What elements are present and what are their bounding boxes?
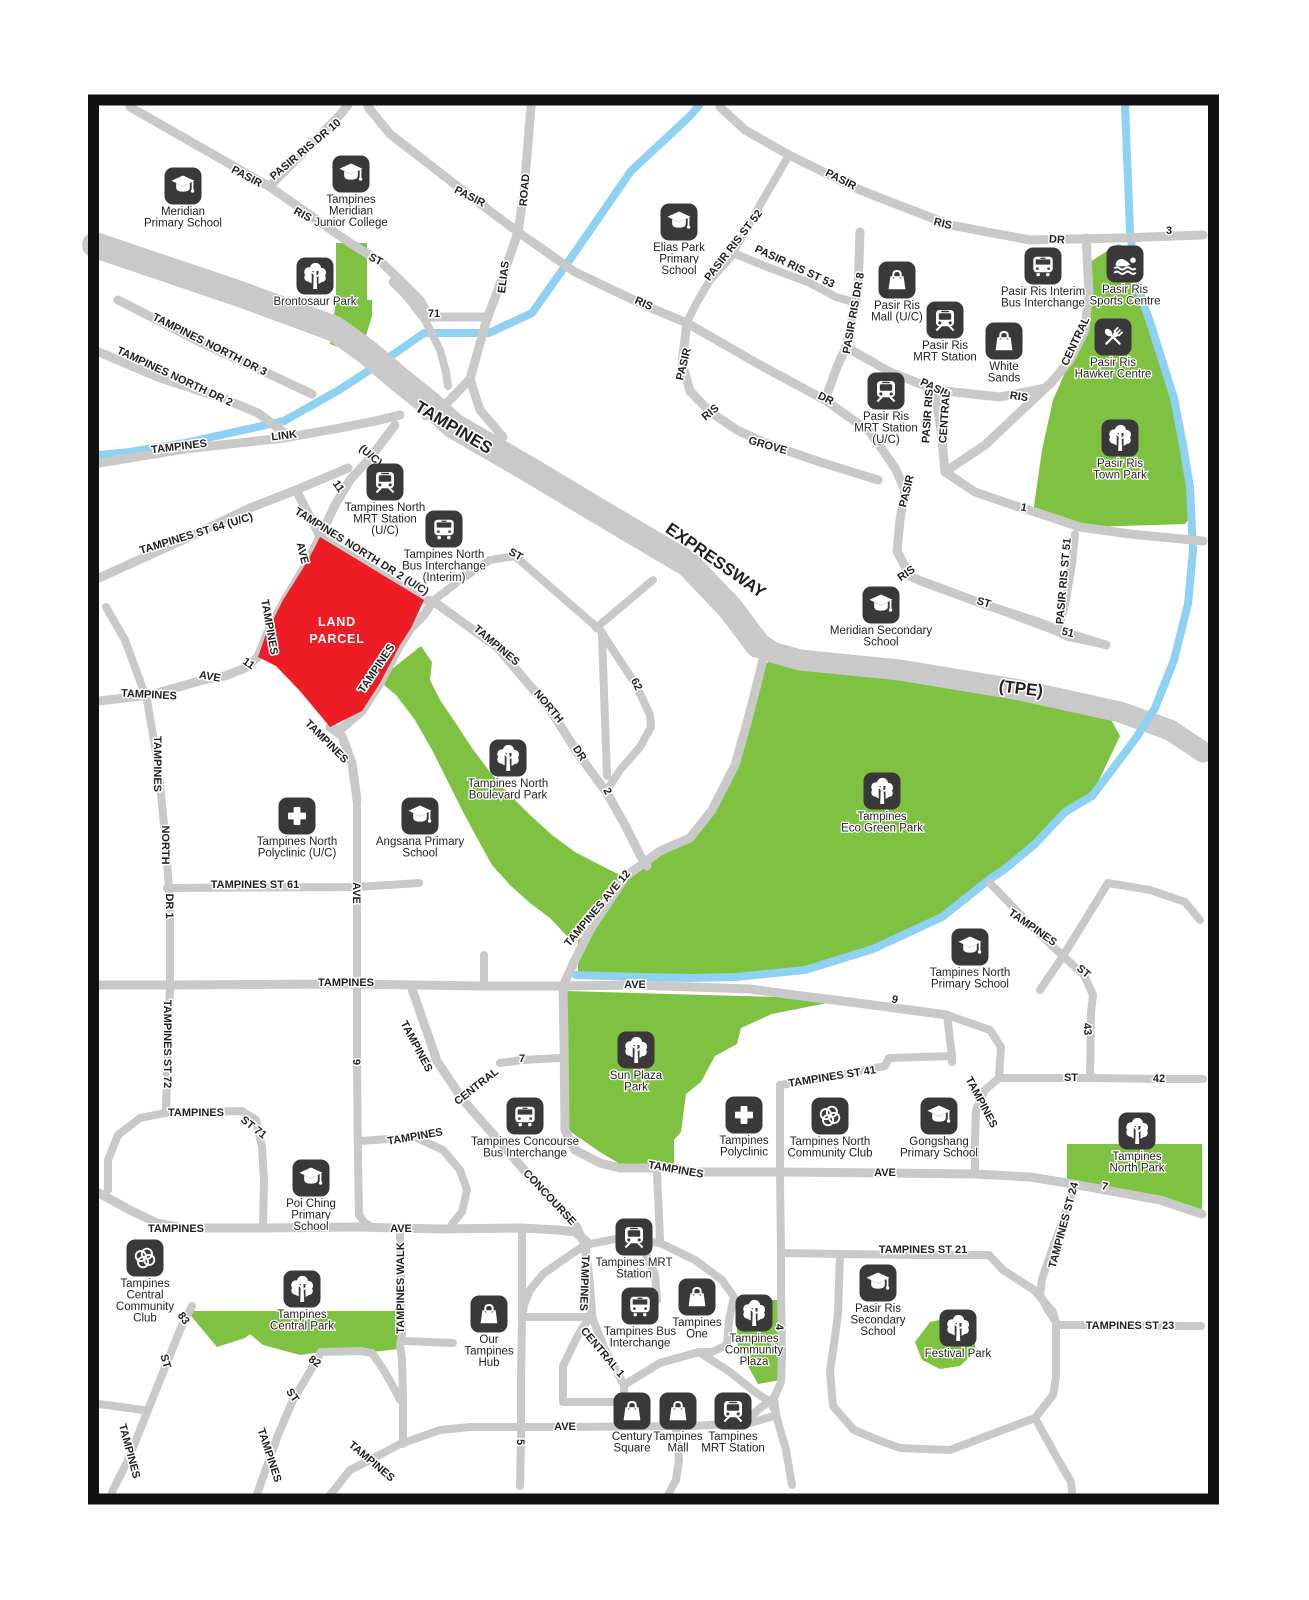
svg-text:(U/C): (U/C): [872, 434, 900, 446]
svg-text:Tampines: Tampines: [708, 1431, 757, 1443]
svg-text:Pasir Ris: Pasir Ris: [1097, 458, 1143, 470]
svg-text:Bus Interchange: Bus Interchange: [483, 1148, 567, 1160]
svg-text:Pasir Ris: Pasir Ris: [874, 300, 920, 312]
svg-text:4: 4: [773, 1324, 785, 1331]
svg-text:Our: Our: [479, 1334, 498, 1346]
svg-text:Century: Century: [612, 1431, 653, 1443]
svg-text:RIS: RIS: [1009, 390, 1029, 404]
svg-text:TAMPINES: TAMPINES: [168, 1107, 224, 1119]
svg-text:Poi Ching: Poi Ching: [286, 1198, 336, 1210]
svg-text:Tampines Concourse: Tampines Concourse: [471, 1136, 579, 1148]
svg-text:Tampines: Tampines: [326, 194, 375, 206]
svg-text:Mall: Mall: [667, 1443, 688, 1455]
svg-text:7: 7: [519, 1053, 525, 1065]
svg-text:Sun Plaza: Sun Plaza: [610, 1070, 663, 1082]
svg-text:Plaza: Plaza: [740, 1356, 769, 1368]
svg-text:TAMPINES: TAMPINES: [148, 1223, 204, 1235]
svg-text:Tampines: Tampines: [120, 1278, 169, 1290]
svg-text:Pasir Ris: Pasir Ris: [863, 411, 909, 423]
svg-text:Central: Central: [126, 1290, 163, 1302]
svg-text:DR 1: DR 1: [163, 893, 175, 918]
svg-text:Tampines: Tampines: [653, 1431, 702, 1443]
svg-text:Hub: Hub: [478, 1357, 499, 1369]
svg-text:School: School: [402, 848, 437, 860]
svg-text:Brontosaur Park: Brontosaur Park: [273, 296, 356, 308]
svg-text:School: School: [661, 265, 696, 277]
svg-text:White: White: [989, 361, 1018, 373]
svg-text:PARCEL: PARCEL: [309, 632, 364, 646]
svg-text:Station: Station: [616, 1269, 652, 1281]
svg-text:MRT Station: MRT Station: [701, 1443, 765, 1455]
svg-text:Square: Square: [613, 1443, 650, 1455]
svg-text:DR: DR: [1049, 233, 1066, 246]
svg-text:Angsana Primary: Angsana Primary: [376, 836, 464, 848]
svg-text:Pasir Ris: Pasir Ris: [922, 340, 968, 352]
svg-text:Eco Green Park: Eco Green Park: [841, 823, 923, 835]
svg-text:AVE: AVE: [390, 1223, 412, 1235]
svg-text:AVE: AVE: [874, 1167, 896, 1179]
svg-text:NORTH: NORTH: [159, 825, 171, 864]
svg-text:Elias Park: Elias Park: [653, 242, 705, 254]
svg-text:Primary: Primary: [291, 1210, 331, 1222]
svg-text:Tampines North: Tampines North: [404, 549, 485, 561]
svg-text:Secondary: Secondary: [851, 1315, 906, 1327]
svg-text:Tampines: Tampines: [857, 811, 906, 823]
svg-text:Tampines North: Tampines North: [790, 1136, 871, 1148]
svg-text:Tampines MRT: Tampines MRT: [595, 1257, 672, 1269]
svg-text:One: One: [686, 1329, 708, 1341]
svg-text:Tampines: Tampines: [277, 1309, 326, 1321]
svg-text:TAMPINES ST 72: TAMPINES ST 72: [161, 1000, 173, 1088]
svg-text:Club: Club: [133, 1313, 157, 1325]
svg-text:Meridian: Meridian: [161, 206, 205, 218]
svg-text:Tampines: Tampines: [729, 1333, 778, 1345]
svg-text:Tampines: Tampines: [719, 1135, 768, 1147]
svg-text:Sports Centre: Sports Centre: [1090, 296, 1161, 308]
svg-text:Hawker Centre: Hawker Centre: [1075, 369, 1152, 381]
svg-text:Community Club: Community Club: [788, 1148, 873, 1160]
svg-text:(Interim): (Interim): [423, 572, 466, 584]
svg-text:ST: ST: [1064, 1072, 1078, 1084]
svg-text:TAMPINES: TAMPINES: [577, 1255, 591, 1311]
svg-text:Sands: Sands: [988, 373, 1021, 385]
svg-text:Polyclinic: Polyclinic: [720, 1147, 768, 1159]
svg-text:Tampines: Tampines: [672, 1317, 721, 1329]
svg-text:LAND: LAND: [318, 615, 356, 629]
svg-text:Junior College: Junior College: [314, 217, 388, 229]
svg-text:Pasir Ris: Pasir Ris: [1102, 284, 1148, 296]
svg-text:Community: Community: [725, 1345, 783, 1357]
svg-text:AVE: AVE: [624, 979, 646, 991]
svg-text:Polyclinic (U/C): Polyclinic (U/C): [258, 848, 337, 860]
svg-text:Primary School: Primary School: [931, 979, 1009, 991]
svg-text:Bus Interchange: Bus Interchange: [402, 561, 486, 573]
svg-text:MRT Station: MRT Station: [854, 423, 918, 435]
svg-text:MRT Station: MRT Station: [913, 352, 977, 364]
svg-text:Gongshang: Gongshang: [909, 1136, 968, 1148]
svg-text:(U/C): (U/C): [371, 525, 399, 537]
svg-text:42: 42: [1153, 1073, 1165, 1085]
svg-text:Tampines North: Tampines North: [345, 502, 426, 514]
svg-text:TAMPINES WALK: TAMPINES WALK: [395, 1242, 407, 1334]
svg-text:TAMPINES: TAMPINES: [151, 736, 163, 792]
svg-text:Tampines North: Tampines North: [468, 778, 549, 790]
svg-text:Primary School: Primary School: [144, 218, 222, 230]
svg-text:Primary School: Primary School: [900, 1148, 978, 1160]
svg-text:5: 5: [514, 1439, 526, 1445]
svg-text:Primary: Primary: [659, 254, 699, 266]
svg-text:TAMPINES ST 23: TAMPINES ST 23: [1086, 1320, 1174, 1332]
svg-text:Tampines: Tampines: [1112, 1151, 1161, 1163]
svg-text:TAMPINES ST 61: TAMPINES ST 61: [211, 879, 299, 891]
svg-text:TAMPINES ST 21: TAMPINES ST 21: [879, 1244, 967, 1256]
svg-text:School: School: [293, 1221, 328, 1233]
svg-text:Park: Park: [624, 1082, 648, 1094]
svg-text:3: 3: [1166, 225, 1172, 237]
svg-text:Pasir Ris: Pasir Ris: [1090, 357, 1136, 369]
svg-text:Bus Interchange: Bus Interchange: [1001, 298, 1085, 310]
svg-text:Tampines North: Tampines North: [257, 836, 338, 848]
svg-text:AVE: AVE: [350, 882, 362, 904]
svg-text:AVE: AVE: [554, 1421, 576, 1433]
svg-text:Pasir Ris: Pasir Ris: [855, 1303, 901, 1315]
svg-text:Meridian: Meridian: [329, 206, 373, 218]
svg-text:School: School: [863, 637, 898, 649]
svg-text:Tampines Bus: Tampines Bus: [604, 1326, 676, 1338]
svg-text:Community: Community: [116, 1301, 174, 1313]
svg-text:Boulevard Park: Boulevard Park: [469, 790, 548, 802]
svg-text:Interchange: Interchange: [610, 1338, 671, 1350]
svg-text:Tampines: Tampines: [464, 1346, 513, 1358]
svg-text:MRT Station: MRT Station: [353, 514, 417, 526]
svg-text:Town Park: Town Park: [1093, 470, 1147, 482]
svg-text:Festival Park: Festival Park: [925, 1348, 992, 1360]
svg-text:School: School: [860, 1326, 895, 1338]
svg-text:43: 43: [1080, 1022, 1093, 1035]
svg-text:Pasir Ris Interim: Pasir Ris Interim: [1001, 286, 1085, 298]
svg-text:Meridian Secondary: Meridian Secondary: [830, 625, 933, 637]
svg-text:9: 9: [350, 1059, 362, 1065]
svg-text:North Park: North Park: [1110, 1163, 1165, 1175]
svg-text:TAMPINES: TAMPINES: [318, 977, 374, 989]
svg-text:Central Park: Central Park: [270, 1321, 334, 1333]
svg-text:Mall (U/C): Mall (U/C): [871, 312, 923, 324]
svg-text:71: 71: [428, 308, 440, 320]
svg-text:Tampines North: Tampines North: [930, 967, 1011, 979]
